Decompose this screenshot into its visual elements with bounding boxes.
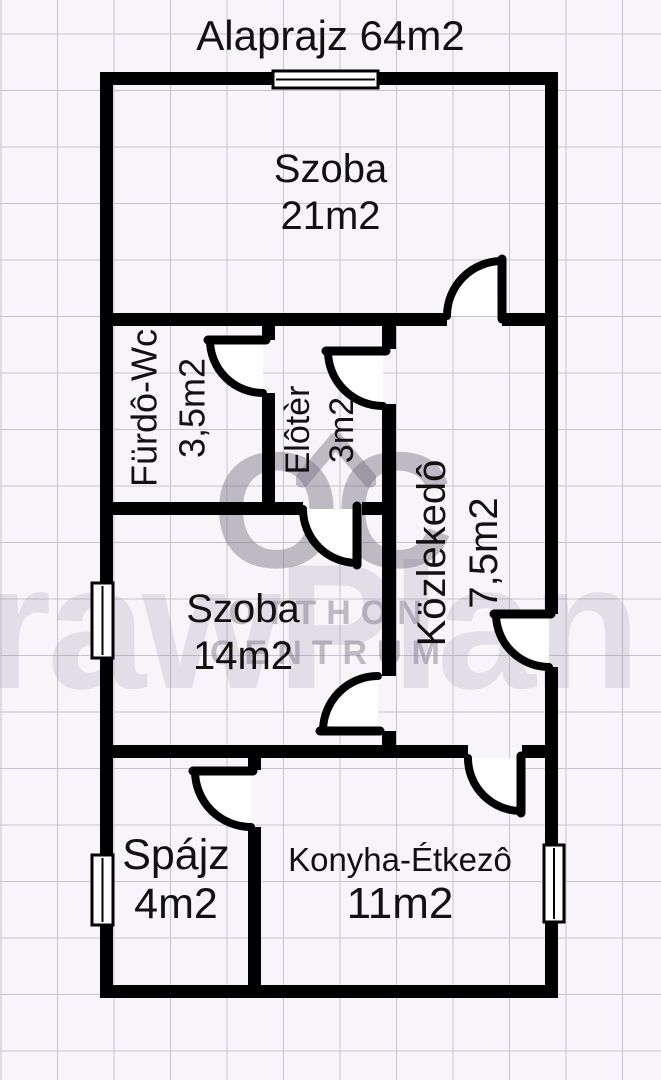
room-area: 3,5m2 [168,329,216,487]
floor-plan-page: rawPlan OC OTTHON CENTRUM [0,0,661,1080]
room-area: 14m2 [103,633,383,680]
wall-kozlekedo-left-mid [382,404,396,676]
room-label-kozlekedo: Közlekedô 7,5m2 [406,460,510,647]
wall-bottom [100,985,558,998]
room-label-konyha-etkezo: Konyha-Étkezô 11m2 [270,839,530,929]
door-konyha [468,756,521,813]
room-name: Közlekedô [406,460,458,647]
room-label-furdo-wc: Fürdô-Wc 3,5m2 [120,329,215,487]
room-name: Elôtèr [276,386,320,475]
wall-szoba21-bottom-left [100,313,447,326]
room-area: 7,5m2 [458,460,510,647]
wall-kozlekedo-left-top [382,326,396,349]
room-name: Szoba [0,146,661,193]
door-furdo-wc [208,340,266,393]
room-name: Konyha-Étkezô [270,839,530,880]
room-name: Spájz [96,831,256,880]
wall-right-lower [545,667,558,998]
window-top-szoba21 [273,71,378,88]
page-title: Alaprajz 64m2 [0,12,661,60]
wall-eloter-bottom-right [362,502,396,515]
room-name: Fürdô-Wc [120,329,168,487]
wall-furdo-eloter-bottom [262,393,275,515]
wall-lower-band-top-left [100,745,468,758]
door-szoba21 [447,259,502,319]
door-spajz [193,771,253,827]
room-area: 3m2 [320,386,364,475]
room-label-eloter: Elôtèr 3m2 [276,386,364,475]
wall-szoba21-bottom-right [502,313,558,326]
room-label-szoba-14: Szoba 14m2 [103,586,383,680]
window-right-konyha [544,845,564,922]
room-area: 4m2 [96,880,256,929]
wall-furdo-bottom [100,502,303,515]
door-eloter-szoba14 [303,506,357,565]
door-szoba14-kozlekedo [320,676,380,731]
room-label-szoba-21: Szoba 21m2 [0,146,661,240]
room-area: 21m2 [0,193,661,240]
room-name: Szoba [103,586,383,633]
room-label-spajz: Spájz 4m2 [96,831,256,930]
wall-lower-band-top-right [522,745,558,758]
room-area: 11m2 [270,880,530,928]
